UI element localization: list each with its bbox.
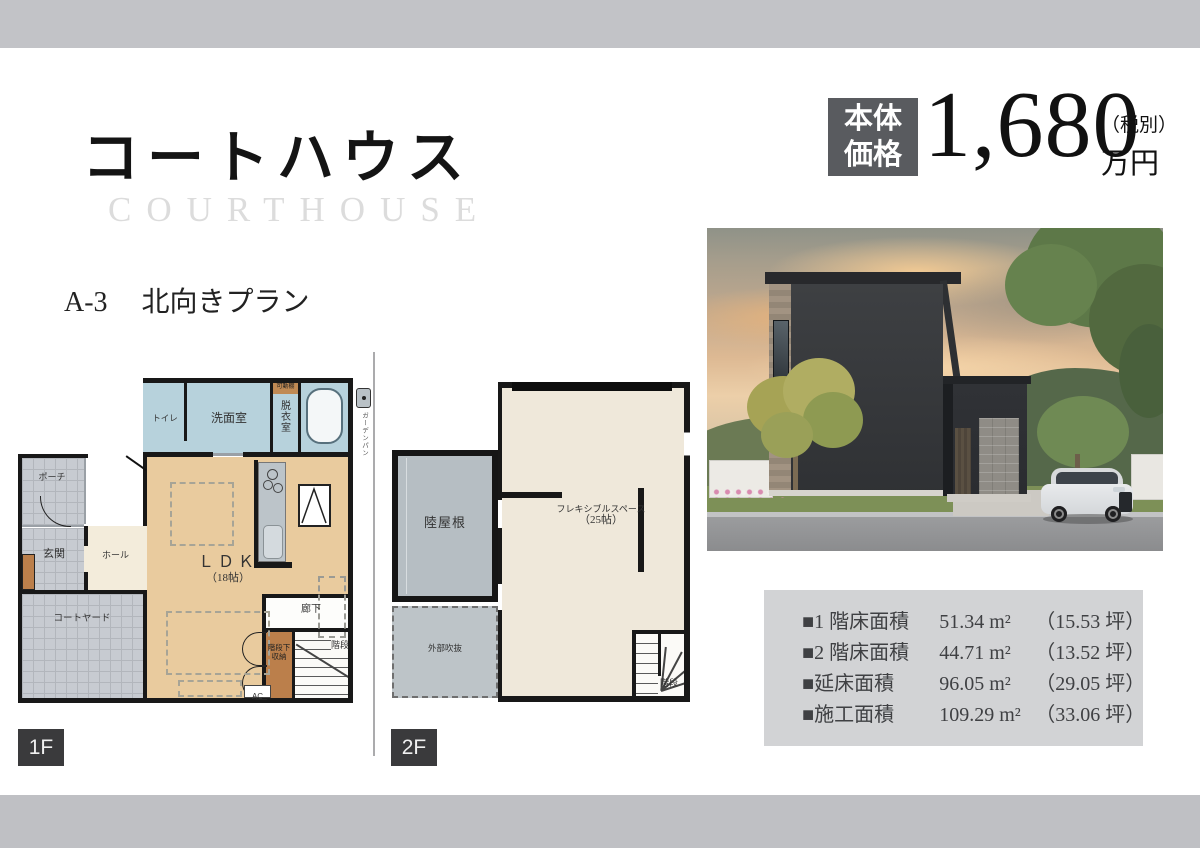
floor2-plan: 階段 陸屋根 外部吹抜 フレキシブルスペース （25帖） xyxy=(386,376,716,716)
movable-shelf-label: 可動棚 xyxy=(273,384,298,391)
tree-mid xyxy=(1037,396,1129,468)
foundation xyxy=(769,490,943,496)
wall xyxy=(84,572,88,590)
ldk-label: ＬＤＫ （18帖） xyxy=(168,554,288,585)
car-wheel xyxy=(1105,506,1121,522)
wall xyxy=(684,456,690,702)
wall xyxy=(512,382,672,391)
garden-pan-label: ガーデンパン xyxy=(360,412,367,457)
wall xyxy=(498,528,502,584)
plan-code: A-3 xyxy=(64,287,108,318)
area-row: ■施工面積 109.29 m² （33.06 坪） xyxy=(764,700,1143,731)
flex-space-label: フレキシブルスペース （25帖） xyxy=(526,504,676,527)
page-title: コートハウス xyxy=(82,112,472,194)
area-value: 51.34 m² xyxy=(939,607,1035,638)
wall xyxy=(684,382,690,432)
stove-burner xyxy=(273,483,283,493)
area-value: 109.29 m² xyxy=(939,700,1035,731)
price-suffix: （税別） 万円 xyxy=(1101,110,1177,182)
top-bar xyxy=(0,0,1200,48)
price-tax-note: （税別） xyxy=(1101,110,1177,137)
flex-space-name: フレキシブルスペース xyxy=(526,504,676,514)
wall xyxy=(143,452,213,457)
main-roof xyxy=(765,272,961,284)
wall xyxy=(498,610,502,702)
entry-door xyxy=(955,428,971,494)
area-value: 96.05 m² xyxy=(939,669,1035,700)
stair-storage-line2: 収納 xyxy=(263,653,295,662)
dining-table xyxy=(170,482,234,546)
wall xyxy=(18,454,22,702)
bathtub xyxy=(306,388,343,444)
porch-label: ポーチ xyxy=(26,472,78,482)
area-label: ■延床面積 xyxy=(802,669,939,700)
page-title-en: COURTHOUSE xyxy=(108,190,491,230)
flyer-page: コートハウス COURTHOUSE A-3北向きプラン 本体 価格 1,680 … xyxy=(0,0,1200,848)
car xyxy=(1041,466,1135,524)
dressing-room-label: 脱衣室 xyxy=(278,400,290,433)
stairs-label: 階段 xyxy=(331,640,348,650)
courtyard-label: コートヤード xyxy=(32,614,132,625)
door-sill xyxy=(213,453,243,456)
ldk-name: ＬＤＫ xyxy=(168,554,288,572)
ac-unit: AC xyxy=(244,685,271,698)
price-label-box: 本体 価格 xyxy=(828,98,918,176)
wall xyxy=(502,492,562,498)
car-grille xyxy=(1119,492,1132,512)
flex-space-size: （25帖） xyxy=(526,514,676,527)
area-row: ■延床面積 96.05 m² （29.05 坪） xyxy=(764,669,1143,700)
wall xyxy=(298,378,301,453)
tv-board xyxy=(178,680,242,697)
entrance-label: 玄関 xyxy=(28,548,80,561)
sofa-set xyxy=(166,611,270,675)
area-row: ■1 階床面積 51.34 m² （15.53 坪） xyxy=(764,607,1143,638)
courtyard-room xyxy=(22,594,143,698)
open-void-label: 外部吹抜 xyxy=(392,644,498,654)
wall xyxy=(84,526,88,546)
stair-steps xyxy=(636,634,658,696)
floor1-plan: 可動棚 階段 xyxy=(18,376,370,716)
house-render xyxy=(707,228,1163,551)
wall xyxy=(143,590,147,700)
area-info-box: ■1 階床面積 51.34 m² （15.53 坪） ■2 階床面積 44.71… xyxy=(764,590,1143,746)
stove-burner xyxy=(263,480,273,490)
car-headlight xyxy=(1113,487,1125,492)
wall xyxy=(498,388,502,500)
area-tsubo: （13.52 坪） xyxy=(1035,638,1143,669)
fence-right xyxy=(1131,454,1163,500)
ac-label: AC xyxy=(252,692,263,701)
plan-name: 北向きプラン xyxy=(142,287,310,318)
garden-pan-icon xyxy=(356,388,371,408)
price-label-top: 本体 xyxy=(844,101,902,137)
tile-edge xyxy=(84,458,86,524)
stair-storage-label: 階段下 収納 xyxy=(263,644,295,661)
area-tsubo: （33.06 坪） xyxy=(1035,700,1143,731)
bottom-bar xyxy=(0,795,1200,848)
refrigerator-symbol xyxy=(298,484,331,527)
area-label: ■施工面積 xyxy=(802,700,939,731)
wall xyxy=(18,454,88,458)
wall xyxy=(658,634,661,676)
area-label: ■2 階床面積 xyxy=(802,638,939,669)
entry-step xyxy=(947,494,1031,502)
recess-shadow xyxy=(943,384,953,496)
window-mark xyxy=(684,432,690,456)
toilet-label: トイレ xyxy=(145,414,185,424)
garden-pan-dot xyxy=(362,396,366,400)
wing-roof xyxy=(943,376,1031,384)
flat-roof-label: 陸屋根 xyxy=(392,516,498,531)
price-label-bottom: 価格 xyxy=(844,137,902,173)
car-wheel xyxy=(1051,506,1067,522)
stone-wall xyxy=(979,418,1019,496)
plan-divider xyxy=(373,352,375,756)
tree-foliage xyxy=(761,412,813,458)
stairs-label-2f: 階段 xyxy=(660,678,678,688)
floor2-tag: 2F xyxy=(391,729,437,766)
tree-foliage xyxy=(1005,244,1097,326)
area-tsubo: （29.05 坪） xyxy=(1035,669,1143,700)
area-tsubo: （15.53 坪） xyxy=(1035,607,1143,638)
area-label: ■1 階床面積 xyxy=(802,607,939,638)
stairs-2f: 階段 xyxy=(636,634,684,696)
hall-label: ホール xyxy=(88,550,143,560)
price-unit: 万円 xyxy=(1101,140,1177,182)
area-value: 44.71 m² xyxy=(939,638,1035,669)
stairs-1f: 階段 xyxy=(295,632,348,698)
wall xyxy=(18,698,353,703)
wall xyxy=(348,378,353,703)
ldk-size: （18帖） xyxy=(168,572,288,585)
wall xyxy=(498,696,690,702)
floor1-tag: 1F xyxy=(18,729,64,766)
area-row: ■2 階床面積 44.71 m² （13.52 坪） xyxy=(764,638,1143,669)
kitchen-counter xyxy=(258,462,286,562)
stove-burner xyxy=(267,469,278,480)
wall xyxy=(143,378,353,383)
wall xyxy=(18,590,147,594)
corridor-label: 廊下 xyxy=(286,604,336,616)
plan-line: A-3北向きプラン xyxy=(64,280,310,320)
tile-edge xyxy=(22,525,84,527)
washroom-label: 洗面室 xyxy=(187,412,271,426)
wall xyxy=(638,488,644,572)
